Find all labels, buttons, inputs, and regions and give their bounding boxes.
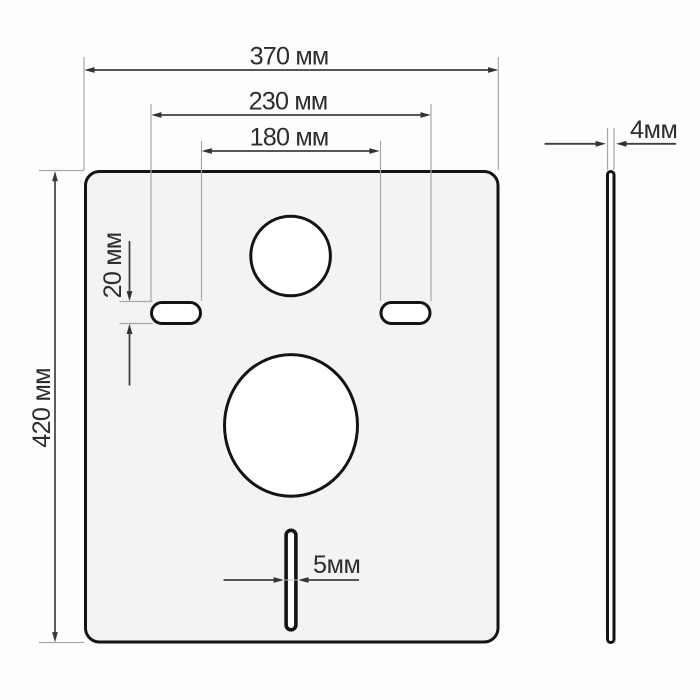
svg-text:4мм: 4мм: [630, 116, 677, 144]
svg-text:420 мм: 420 мм: [28, 368, 56, 447]
svg-text:20 мм: 20 мм: [99, 233, 127, 299]
svg-text:5мм: 5мм: [313, 551, 360, 579]
svg-text:370 мм: 370 мм: [250, 43, 329, 71]
svg-text:180 мм: 180 мм: [250, 124, 329, 152]
svg-text:230 мм: 230 мм: [249, 88, 328, 116]
